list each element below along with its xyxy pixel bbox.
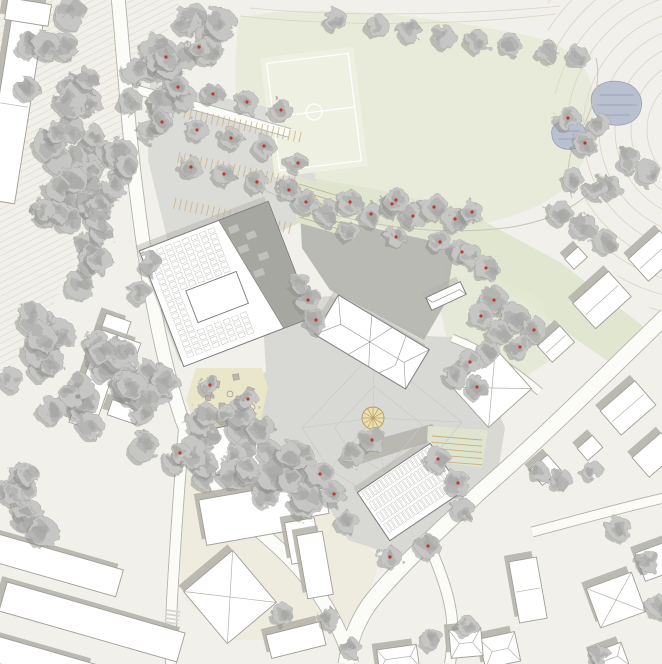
tree-canopy-texture <box>474 383 487 396</box>
tree-canopy-texture <box>157 369 173 385</box>
tree-canopy-texture <box>553 208 567 222</box>
tree-canopy-texture <box>245 464 253 472</box>
tree-canopy-texture <box>150 253 160 263</box>
new-tree-marker <box>211 92 214 95</box>
tree-canopy-texture <box>92 426 100 434</box>
new-tree-marker <box>332 492 335 495</box>
tree <box>125 431 158 464</box>
new-tree-marker <box>160 120 163 123</box>
contour-line <box>615 40 662 220</box>
tree-canopy-texture <box>101 342 115 356</box>
tree-canopy-texture <box>13 375 20 382</box>
tree-canopy-texture <box>585 467 591 473</box>
new-tree-marker <box>296 161 299 164</box>
new-tree-marker <box>566 116 569 119</box>
tree-canopy-texture <box>595 653 603 661</box>
tree-canopy-texture <box>461 254 468 261</box>
tree-canopy-texture <box>145 441 156 452</box>
tree-canopy-texture <box>89 100 98 109</box>
tree-canopy-texture <box>300 278 308 286</box>
tree-canopy-texture <box>432 233 440 241</box>
tree-canopy-texture <box>8 492 15 499</box>
new-tree-marker <box>468 360 471 363</box>
tree-canopy-texture <box>286 471 300 485</box>
tree <box>0 367 23 393</box>
tree-canopy-texture <box>463 510 470 517</box>
tree <box>36 397 66 427</box>
tree-canopy-texture <box>614 522 627 535</box>
tree-canopy-texture <box>404 22 416 34</box>
tree-canopy-texture <box>136 59 147 70</box>
tree-canopy-texture <box>477 41 485 49</box>
tree-canopy-texture <box>533 467 544 478</box>
tree-canopy-texture <box>306 490 319 503</box>
new-tree-marker <box>318 472 321 475</box>
new-tree-marker <box>369 212 372 215</box>
new-tree-marker <box>178 451 181 454</box>
tree-canopy-texture <box>188 128 195 135</box>
tree-canopy-texture <box>429 199 444 214</box>
new-tree-marker <box>470 210 473 213</box>
tree-canopy-texture <box>3 378 10 385</box>
tree-canopy-texture <box>650 172 657 179</box>
tree-canopy-texture <box>138 285 149 296</box>
tree-canopy-texture <box>594 120 603 129</box>
tree-canopy-texture <box>509 343 520 354</box>
tree-canopy-texture <box>521 339 530 348</box>
tree-canopy-texture <box>126 160 137 171</box>
tree-canopy-texture <box>170 77 182 89</box>
tree-canopy-texture <box>568 177 579 188</box>
tree-canopy-texture <box>91 132 101 142</box>
tree-canopy-texture <box>451 373 459 381</box>
new-tree-marker <box>176 85 179 88</box>
play-equipment <box>233 374 240 381</box>
tree-canopy-texture <box>218 165 225 172</box>
tree-canopy-texture <box>123 383 138 398</box>
tree-canopy-texture <box>526 321 537 332</box>
tree-canopy-texture <box>344 517 354 527</box>
tree-canopy-texture <box>123 92 130 99</box>
tree-canopy-texture <box>25 309 40 324</box>
new-tree-marker <box>370 438 373 441</box>
tree-canopy-texture <box>251 424 266 439</box>
new-tree-marker <box>432 205 435 208</box>
tree-canopy-texture <box>563 120 571 128</box>
tree-canopy-texture <box>220 411 230 421</box>
new-tree-marker <box>314 318 317 321</box>
tree-canopy-texture <box>110 177 123 190</box>
tree <box>644 595 662 620</box>
tree-canopy-texture <box>343 451 356 464</box>
tree-canopy-texture <box>448 476 459 487</box>
tree-canopy-texture <box>52 178 67 193</box>
tree-canopy-texture <box>102 229 114 241</box>
tree-canopy-texture <box>67 0 85 18</box>
tree-canopy-texture <box>54 125 65 136</box>
tree-canopy-texture <box>464 622 476 634</box>
tree <box>545 200 572 227</box>
tree-canopy-texture <box>30 324 43 337</box>
tree-canopy-texture <box>56 205 63 212</box>
tree-canopy-texture <box>77 71 89 83</box>
new-tree-marker <box>475 385 478 388</box>
tree-canopy-texture <box>19 505 30 516</box>
tree-canopy-texture <box>34 206 46 218</box>
tree-canopy-texture <box>321 611 331 621</box>
tree-canopy-texture <box>424 535 437 548</box>
new-tree-marker <box>583 141 586 144</box>
east-branch-road <box>532 498 662 532</box>
new-tree-marker <box>306 298 309 301</box>
site-plan <box>0 0 662 664</box>
site-plan-container <box>0 0 662 664</box>
new-tree-marker <box>255 180 258 183</box>
existing-building-19 <box>600 381 656 435</box>
tree-canopy-texture <box>344 229 355 240</box>
tree-canopy-texture <box>482 310 490 318</box>
tree-canopy-texture <box>467 354 477 364</box>
tree-canopy-texture <box>181 167 191 177</box>
tree-canopy-texture <box>23 471 31 479</box>
new-tree-marker <box>246 397 249 400</box>
tree-canopy-texture <box>552 470 563 481</box>
tree-canopy-texture <box>175 18 190 33</box>
new-tree-marker <box>453 217 456 220</box>
tree-canopy-texture <box>360 436 373 449</box>
tree-canopy-texture <box>221 468 234 481</box>
play-equipment-box <box>233 374 240 381</box>
new-tree-marker <box>479 314 482 317</box>
tree-canopy-texture <box>208 12 223 27</box>
new-tree-marker <box>189 165 192 168</box>
tree-canopy-texture <box>37 335 52 350</box>
new-tree-marker <box>460 250 463 253</box>
new-tree-marker <box>164 55 167 58</box>
new-tree-marker <box>262 144 265 147</box>
tree-canopy-texture <box>307 312 319 324</box>
tree-canopy-texture <box>429 636 441 648</box>
tree-canopy-texture <box>485 347 496 358</box>
new-tree-marker <box>348 200 351 203</box>
tree-canopy-texture <box>438 456 448 466</box>
new-tree-marker <box>394 198 397 201</box>
tree-canopy-texture <box>434 30 445 41</box>
tree <box>605 517 632 544</box>
new-tree-marker <box>197 45 200 48</box>
tree-canopy-texture <box>648 552 659 563</box>
new-tree-marker <box>518 345 521 348</box>
tree-canopy-texture <box>272 100 285 113</box>
tree-canopy-texture <box>508 39 517 48</box>
tree-canopy-texture <box>37 43 50 56</box>
new-tree-marker <box>208 383 211 386</box>
tree-canopy-texture <box>14 497 21 504</box>
tree-canopy-texture <box>298 193 311 206</box>
new-tree-marker <box>390 202 393 205</box>
tree-canopy-texture <box>97 211 108 222</box>
new-tree-marker <box>484 266 487 269</box>
tree-canopy-texture <box>249 172 261 184</box>
tree-canopy-texture <box>285 452 298 465</box>
new-tree-marker <box>195 128 198 131</box>
tree-canopy-texture <box>68 214 81 227</box>
new-tree-marker <box>426 544 429 547</box>
tree-canopy-texture <box>343 643 354 654</box>
new-tree-marker <box>394 235 397 238</box>
tree-canopy-texture <box>243 99 252 108</box>
tree-canopy-texture <box>94 255 103 264</box>
new-tree-marker <box>438 240 441 243</box>
new-tree-marker <box>456 481 459 484</box>
tree-canopy-texture <box>586 180 597 191</box>
tree-canopy-texture <box>487 266 495 274</box>
tree-canopy-texture <box>297 489 307 499</box>
tree-canopy-texture <box>345 202 354 211</box>
new-tree-marker <box>388 555 391 558</box>
tree-canopy-texture <box>470 249 477 256</box>
tree-canopy-texture <box>21 81 35 95</box>
tree-canopy-texture <box>622 146 636 160</box>
tree-canopy-texture <box>141 261 154 274</box>
tree-canopy-texture <box>128 100 139 111</box>
tree-canopy-texture <box>48 407 63 422</box>
tree-canopy-texture <box>539 43 549 53</box>
new-tree-marker <box>411 214 414 217</box>
tree-canopy-texture <box>324 211 336 223</box>
tree-canopy-texture <box>141 409 149 417</box>
tree-canopy-texture <box>206 376 217 387</box>
tree-canopy-texture <box>477 317 485 325</box>
tree <box>564 45 589 70</box>
tree-canopy-texture <box>58 91 71 104</box>
tree-canopy-texture <box>78 279 89 290</box>
tree-canopy-texture <box>489 327 498 336</box>
tree-canopy-texture <box>94 194 106 206</box>
tree-canopy-texture <box>55 332 70 347</box>
tree-canopy-texture <box>158 47 170 59</box>
new-tree-marker <box>222 172 225 175</box>
new-tree-marker <box>532 328 535 331</box>
new-tree-marker <box>492 298 495 301</box>
new-tree-marker <box>229 136 232 139</box>
new-tree-marker <box>304 200 307 203</box>
tree-canopy-texture <box>601 240 612 251</box>
tree-canopy-texture <box>150 90 164 104</box>
new-tree-marker <box>279 108 282 111</box>
tree <box>418 628 443 653</box>
tree-canopy-texture <box>337 15 345 23</box>
tree-canopy-texture <box>578 223 589 234</box>
tree-canopy-texture <box>469 33 476 40</box>
tree-canopy-texture <box>125 349 134 358</box>
tree-canopy-texture <box>30 526 47 543</box>
new-tree-marker <box>245 100 248 103</box>
tree <box>579 460 602 483</box>
tree-canopy-texture <box>370 25 377 32</box>
tree-canopy-texture <box>569 52 581 64</box>
tree-canopy-texture <box>65 385 76 396</box>
new-tree-marker <box>287 188 290 191</box>
new-tree-marker <box>436 457 439 460</box>
tree-canopy-texture <box>281 611 290 620</box>
tree <box>203 8 236 41</box>
